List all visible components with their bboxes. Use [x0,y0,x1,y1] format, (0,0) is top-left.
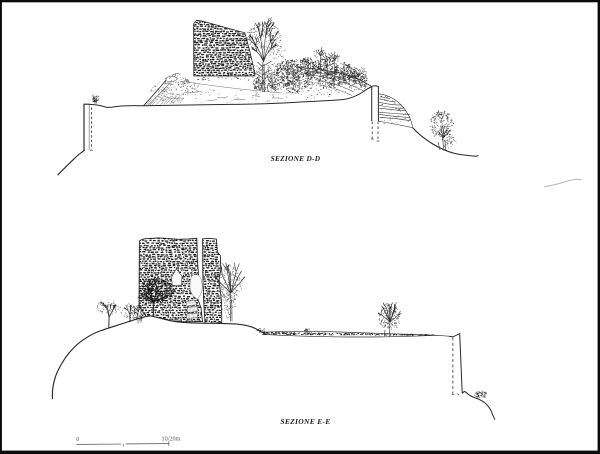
svg-text:0: 0 [76,436,79,443]
svg-text:SEZIONE D-D: SEZIONE D-D [271,154,321,163]
svg-text:10/20m: 10/20m [162,436,181,443]
svg-text:SEZIONE E-E: SEZIONE E-E [280,417,330,426]
